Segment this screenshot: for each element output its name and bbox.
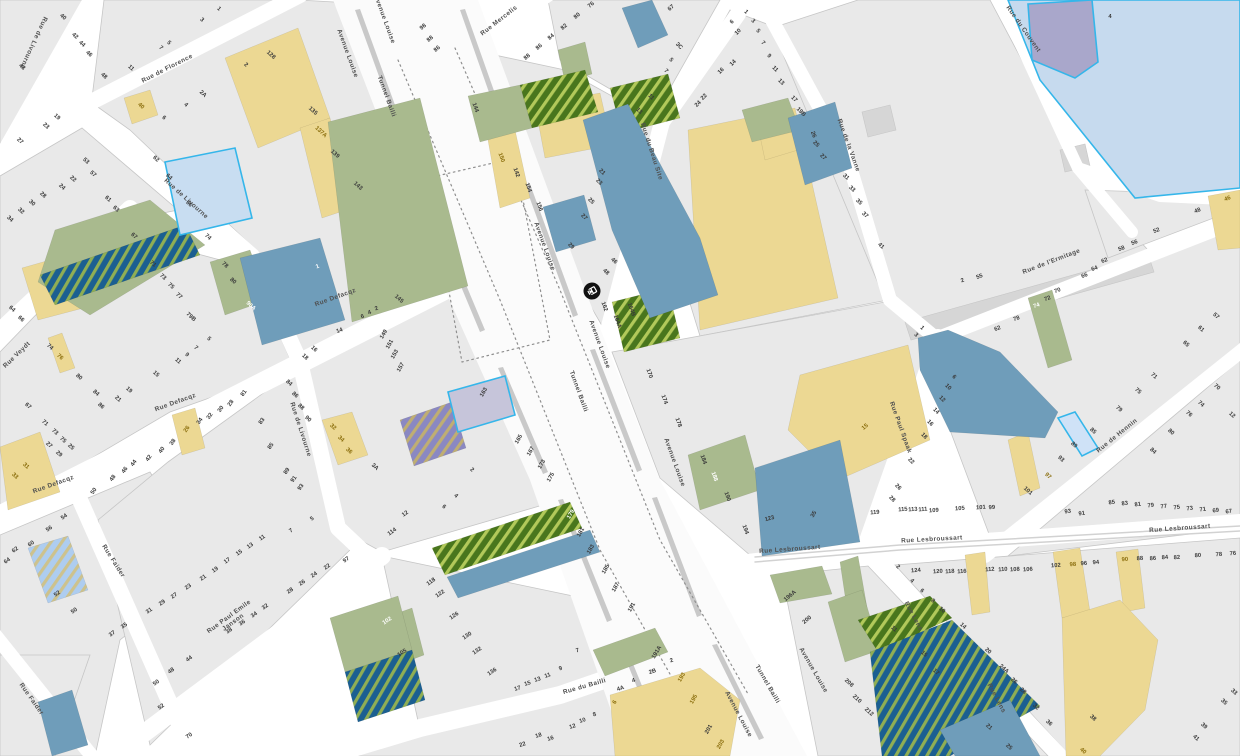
house-number: 26 xyxy=(893,483,902,492)
house-number: 90 xyxy=(1122,557,1129,563)
house-number: 105 xyxy=(955,506,966,513)
map-viewport[interactable]: Rue de LivourneRue de FlorenceRue de Liv… xyxy=(0,0,1240,756)
house-number: 111 xyxy=(918,507,928,514)
house-number: 101 xyxy=(976,505,987,512)
house-number: 98 xyxy=(1070,562,1078,568)
house-number: 86 xyxy=(1150,556,1158,562)
house-number: 109 xyxy=(929,508,940,515)
house-number: 46 xyxy=(84,50,93,59)
house-number: 124 xyxy=(911,568,922,575)
house-number: 42 xyxy=(145,454,154,463)
house-number: 102 xyxy=(1051,563,1061,570)
house-number: 88 xyxy=(1137,556,1145,562)
house-number: 40 xyxy=(158,446,167,455)
house-number: 108 xyxy=(1010,567,1021,574)
map-canvas[interactable]: Rue de LivourneRue de FlorenceRue de Liv… xyxy=(0,0,1240,756)
house-number: 119 xyxy=(870,510,881,517)
house-number: 115 xyxy=(898,507,909,514)
house-number: 77 xyxy=(1160,504,1167,511)
house-number: 99 xyxy=(989,505,997,511)
house-number: 94 xyxy=(1093,560,1101,566)
house-number: 106 xyxy=(1023,567,1034,574)
house-number: 97 xyxy=(342,556,351,565)
house-number: 116 xyxy=(957,569,968,576)
house-number: 118 xyxy=(945,569,956,576)
house-number: 23 xyxy=(41,122,50,131)
house-number: 120 xyxy=(933,569,943,576)
house-number: 22 xyxy=(906,457,915,466)
house-number: 84 xyxy=(1162,555,1170,561)
house-number: 96 xyxy=(1081,561,1089,567)
house-number: 86 xyxy=(535,42,544,51)
house-number: 78 xyxy=(1216,552,1224,558)
house-number: 67 xyxy=(1225,509,1232,516)
house-number: 88 xyxy=(523,52,532,61)
house-number: 46 xyxy=(121,465,130,474)
house-number: 80 xyxy=(1195,553,1202,559)
house-number: 48 xyxy=(109,473,118,482)
house-number: 76 xyxy=(1230,551,1238,557)
house-number: 82 xyxy=(1174,555,1181,561)
house-number: 74 xyxy=(203,233,212,242)
house-number: 112 xyxy=(985,567,995,574)
house-number: 113 xyxy=(908,507,919,514)
house-number: 110 xyxy=(998,567,1008,574)
